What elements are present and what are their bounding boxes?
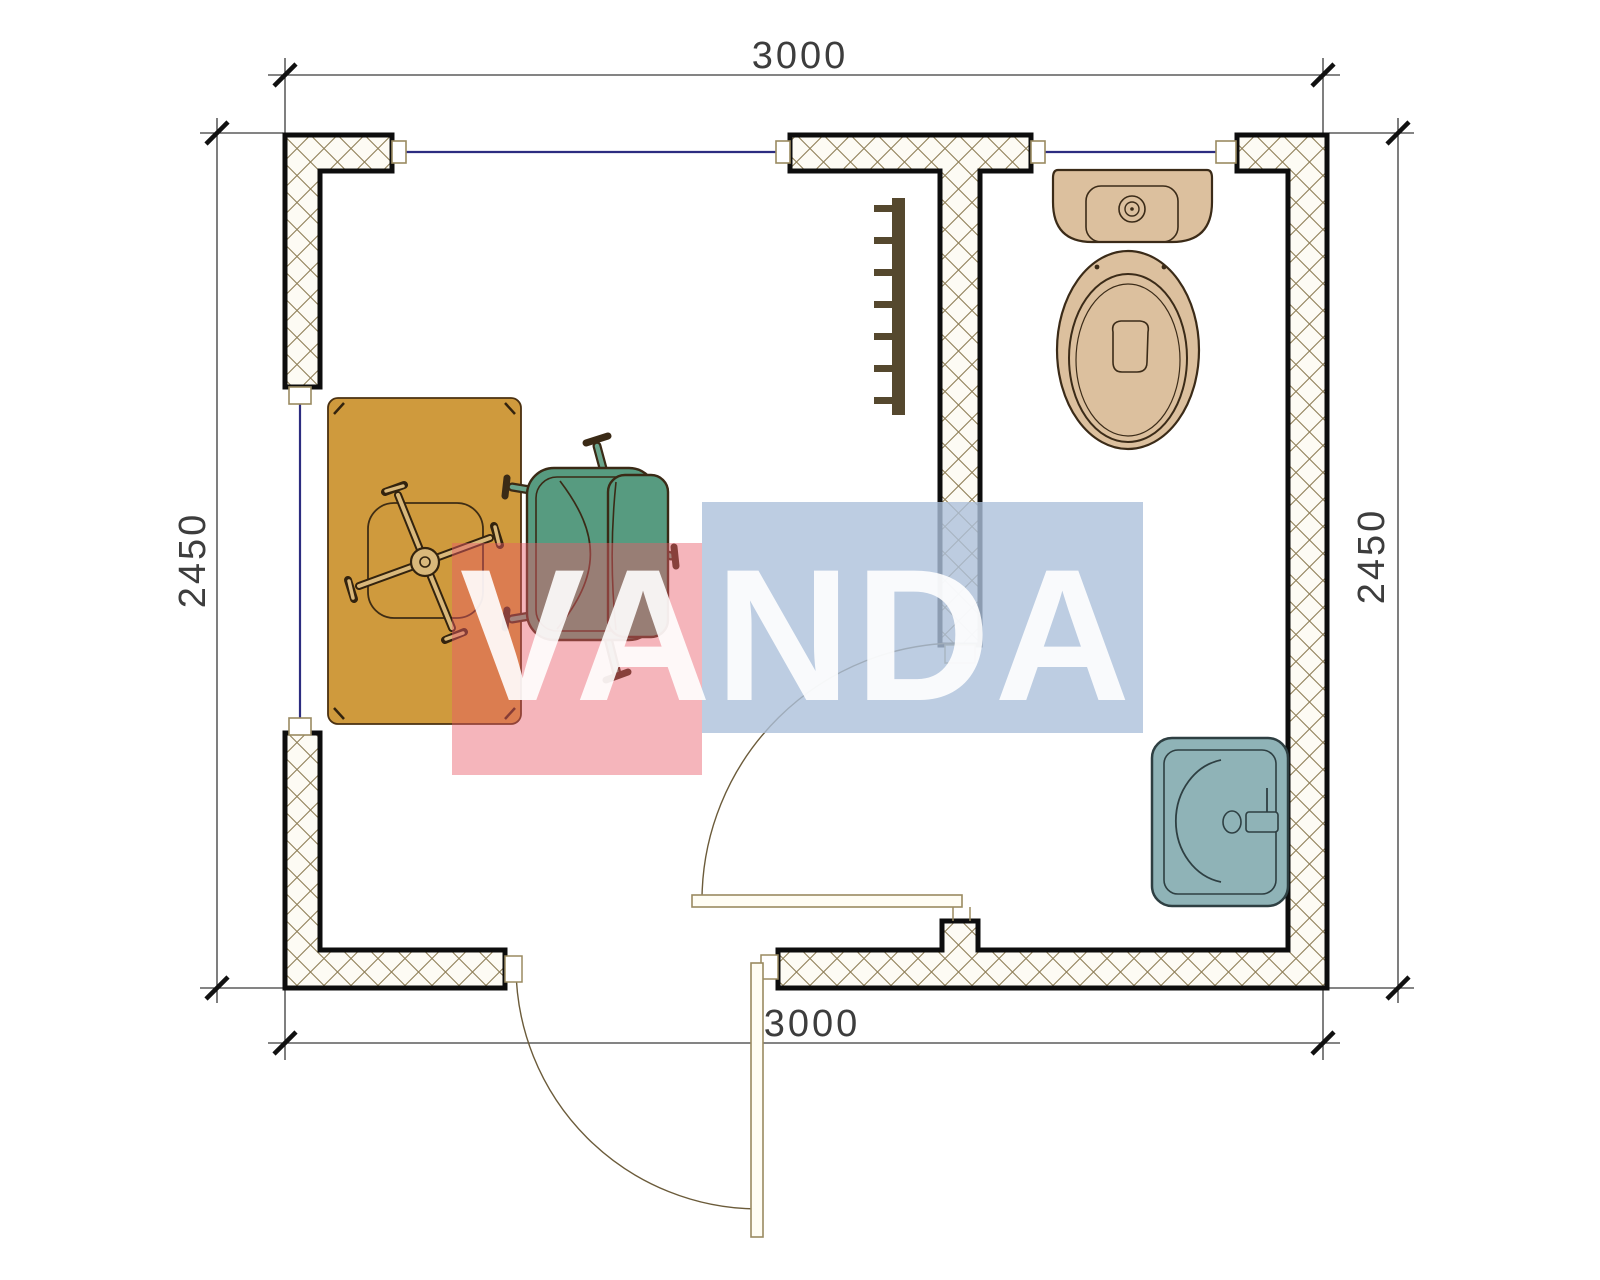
left-dimension-label: 2450 <box>172 512 214 609</box>
right-dimension-label: 2450 <box>1351 508 1393 605</box>
exterior-door-leaf <box>751 963 763 1237</box>
sink-drain <box>1223 811 1241 833</box>
sink-faucet <box>1246 812 1278 832</box>
radiator-rung <box>874 301 892 308</box>
toilet <box>1053 170 1212 449</box>
radiator-bar <box>892 198 905 415</box>
radiator-rung <box>874 269 892 276</box>
toilet-seat-bolt <box>1162 265 1167 270</box>
watermark: VANDA <box>452 502 1143 775</box>
radiator-rung <box>874 397 892 404</box>
wall-top-left-corner <box>285 135 392 387</box>
exterior-door-frame <box>505 956 522 982</box>
watermark-text: VANDA <box>460 530 1135 740</box>
radiator-rung <box>874 333 892 340</box>
window-frame <box>1216 141 1236 163</box>
radiator-rung <box>874 205 892 212</box>
floorplan-canvas: 3000 3000 2450 2450 <box>0 0 1600 1280</box>
bottom-dimension-label: 3000 <box>764 1003 861 1045</box>
toilet-bowl <box>1057 251 1199 449</box>
window-frame <box>1031 141 1045 163</box>
window-frame <box>289 387 311 404</box>
star-base-hub <box>411 548 439 576</box>
radiator-rung <box>874 365 892 372</box>
interior-door-leaf <box>692 895 962 907</box>
window-frame <box>392 141 406 163</box>
floorplan-drawing: 3000 3000 2450 2450 <box>0 0 1600 1280</box>
window-frame <box>776 141 790 163</box>
exterior-door-swing-arc <box>516 968 757 1209</box>
radiator-rung <box>874 237 892 244</box>
sink <box>1152 738 1288 906</box>
radiator <box>874 198 905 415</box>
window-frame <box>289 718 311 735</box>
toilet-seat-bolt <box>1095 265 1100 270</box>
toilet-tank <box>1053 170 1212 242</box>
top-dimension-label: 3000 <box>752 35 849 77</box>
